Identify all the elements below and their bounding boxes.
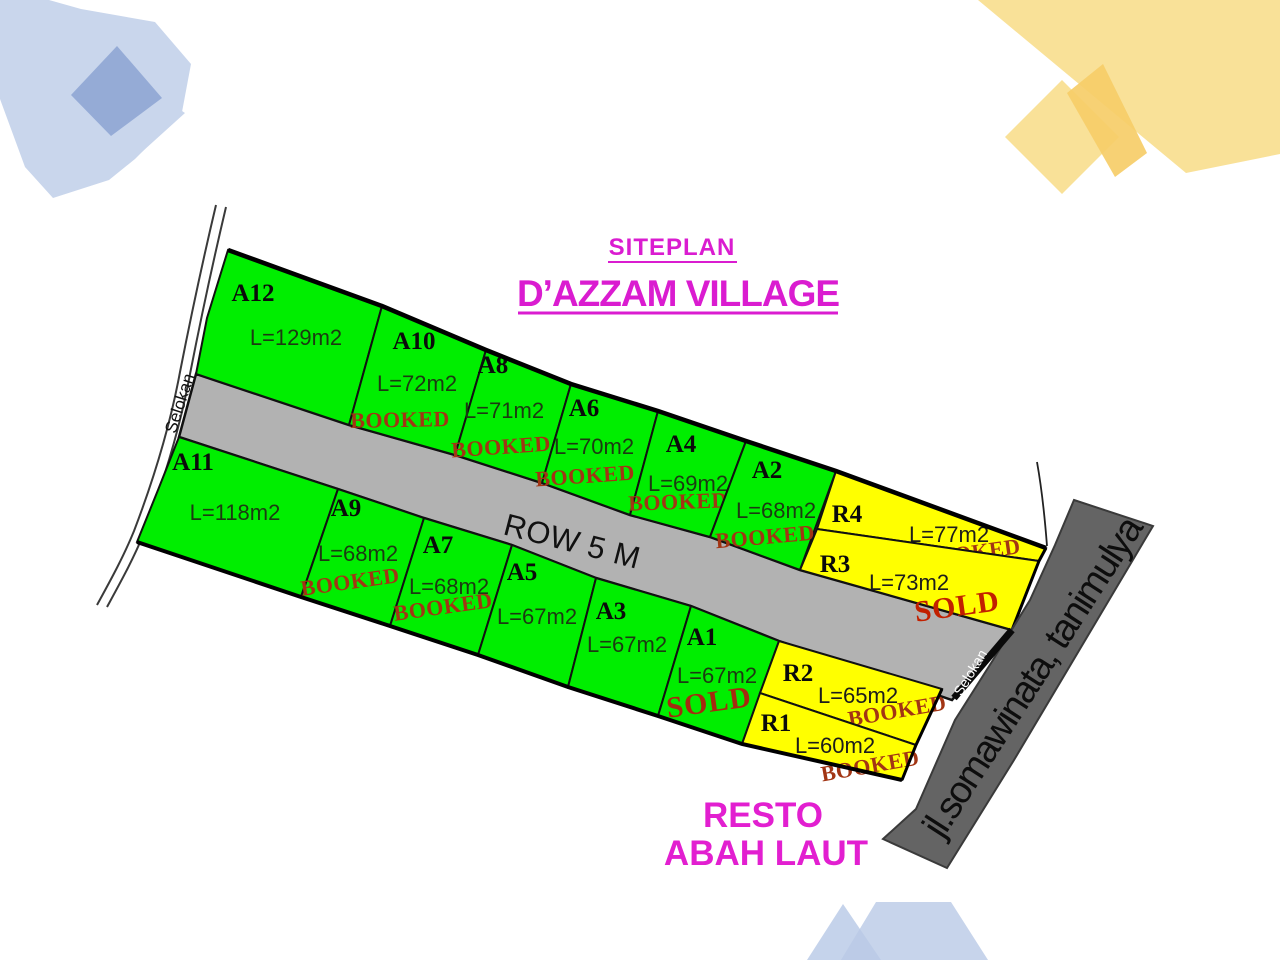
svg-text:A7: A7 — [423, 532, 454, 559]
svg-text:L=68m2: L=68m2 — [318, 541, 398, 566]
svg-text:BOOKED: BOOKED — [350, 406, 450, 433]
svg-text:A3: A3 — [596, 598, 627, 625]
svg-text:L=73m2: L=73m2 — [869, 570, 949, 595]
svg-text:A2: A2 — [752, 457, 783, 484]
svg-text:R1: R1 — [761, 710, 792, 737]
svg-text:L=67m2: L=67m2 — [587, 632, 667, 657]
svg-text:A6: A6 — [569, 395, 600, 422]
svg-text:D’AZZAM VILLAGE: D’AZZAM VILLAGE — [517, 273, 839, 314]
svg-text:A12: A12 — [231, 280, 274, 307]
svg-text:L=70m2: L=70m2 — [554, 434, 634, 459]
svg-text:A10: A10 — [392, 328, 435, 355]
svg-text:A4: A4 — [666, 431, 697, 458]
svg-text:L=67m2: L=67m2 — [497, 604, 577, 629]
svg-text:A9: A9 — [331, 495, 362, 522]
svg-text:A11: A11 — [172, 449, 214, 476]
svg-text:L=71m2: L=71m2 — [464, 398, 544, 423]
svg-text:L=129m2: L=129m2 — [250, 325, 342, 350]
svg-text:R4: R4 — [832, 501, 863, 528]
svg-text:ABAH LAUT: ABAH LAUT — [664, 834, 868, 873]
svg-text:R2: R2 — [783, 660, 814, 687]
svg-text:SITEPLAN: SITEPLAN — [609, 234, 736, 261]
svg-text:L=118m2: L=118m2 — [190, 500, 281, 525]
svg-text:R3: R3 — [820, 551, 851, 578]
svg-text:L=72m2: L=72m2 — [377, 371, 457, 396]
svg-text:A5: A5 — [507, 559, 538, 586]
svg-text:L=68m2: L=68m2 — [736, 498, 816, 523]
svg-text:A1: A1 — [687, 624, 718, 651]
svg-text:BOOKED: BOOKED — [628, 487, 728, 515]
svg-text:RESTO: RESTO — [703, 796, 823, 835]
